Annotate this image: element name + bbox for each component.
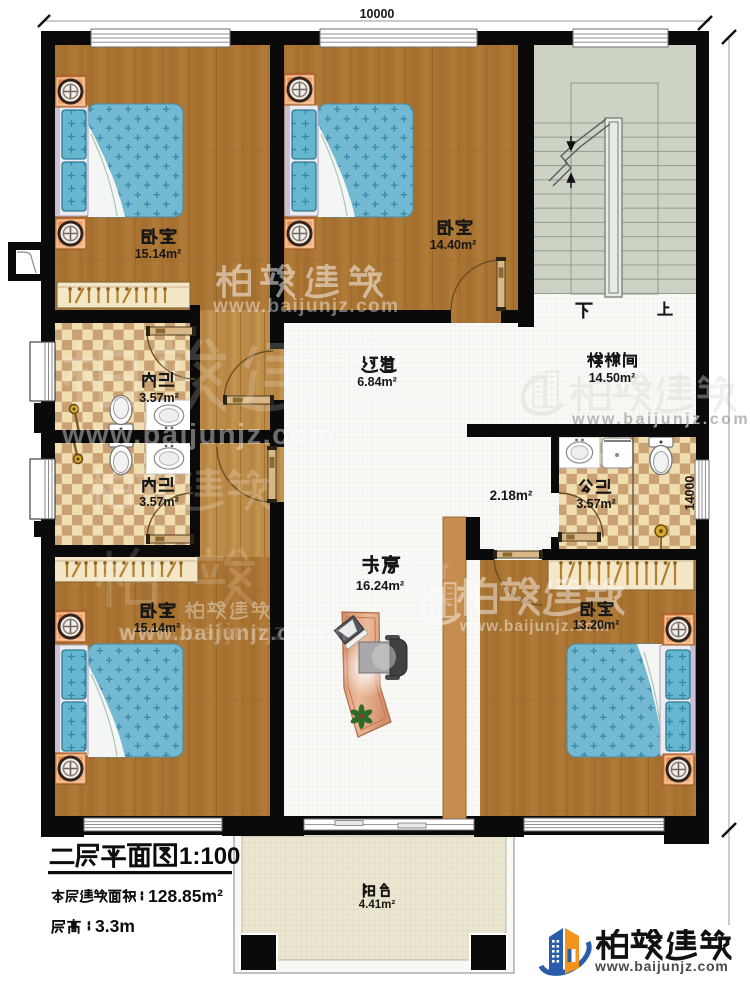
svg-text:15.14m²: 15.14m² bbox=[134, 621, 181, 635]
svg-text:www.baijunjz.com: www.baijunjz.com bbox=[594, 958, 729, 974]
svg-text:3.57m²: 3.57m² bbox=[139, 391, 179, 405]
svg-text:www.baijunjz.com: www.baijunjz.com bbox=[571, 411, 750, 428]
svg-text:1:100: 1:100 bbox=[179, 843, 240, 870]
svg-text:14.50m²: 14.50m² bbox=[589, 371, 636, 385]
svg-text:3.3m: 3.3m bbox=[95, 916, 135, 936]
svg-text:10000: 10000 bbox=[360, 7, 395, 21]
svg-text:4.41m²: 4.41m² bbox=[359, 899, 396, 911]
svg-text:14.40m²: 14.40m² bbox=[430, 238, 477, 252]
svg-text:14000: 14000 bbox=[683, 476, 697, 511]
svg-text:15.14m²: 15.14m² bbox=[135, 247, 182, 261]
svg-text:www.baijunjz.com: www.baijunjz.com bbox=[61, 419, 336, 451]
svg-text:www.baijunjz.com: www.baijunjz.com bbox=[212, 296, 399, 317]
svg-text:3.57m²: 3.57m² bbox=[139, 495, 179, 509]
svg-text:3.57m²: 3.57m² bbox=[576, 497, 616, 511]
svg-text:16.24m²: 16.24m² bbox=[356, 578, 405, 593]
svg-text:13.20m²: 13.20m² bbox=[573, 618, 620, 632]
svg-text:128.85m²: 128.85m² bbox=[148, 886, 223, 906]
svg-text:6.84m²: 6.84m² bbox=[357, 375, 397, 389]
svg-text:2.18m²: 2.18m² bbox=[490, 488, 533, 503]
